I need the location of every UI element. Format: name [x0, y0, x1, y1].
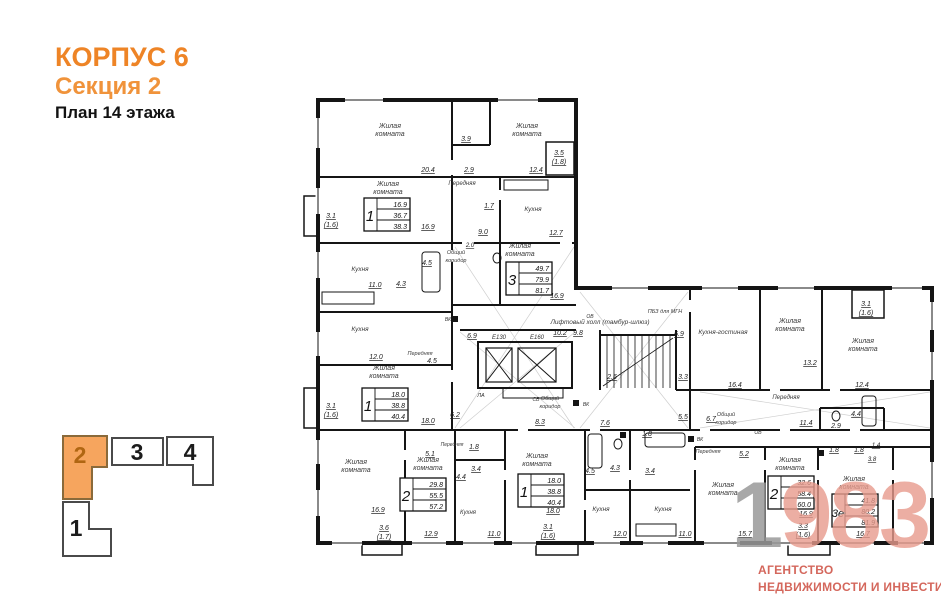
watermark-digits-983: 983	[780, 462, 928, 567]
section-4-label: 4	[184, 439, 197, 465]
watermark-digit-1: 1	[731, 462, 780, 567]
watermark-logo: 1983	[731, 468, 928, 562]
agency-line1: АГЕНТСТВО	[758, 562, 941, 579]
agency-caption: АГЕНТСТВО НЕДВИЖИМОСТИ И ИНВЕСТИЦИЙ	[758, 562, 941, 596]
agency-line2: НЕДВИЖИМОСТИ И ИНВЕСТИЦИЙ	[758, 579, 941, 596]
section-2-label: 2	[74, 442, 87, 468]
section-3-label: 3	[131, 439, 144, 465]
section-1-label: 1	[70, 515, 83, 541]
